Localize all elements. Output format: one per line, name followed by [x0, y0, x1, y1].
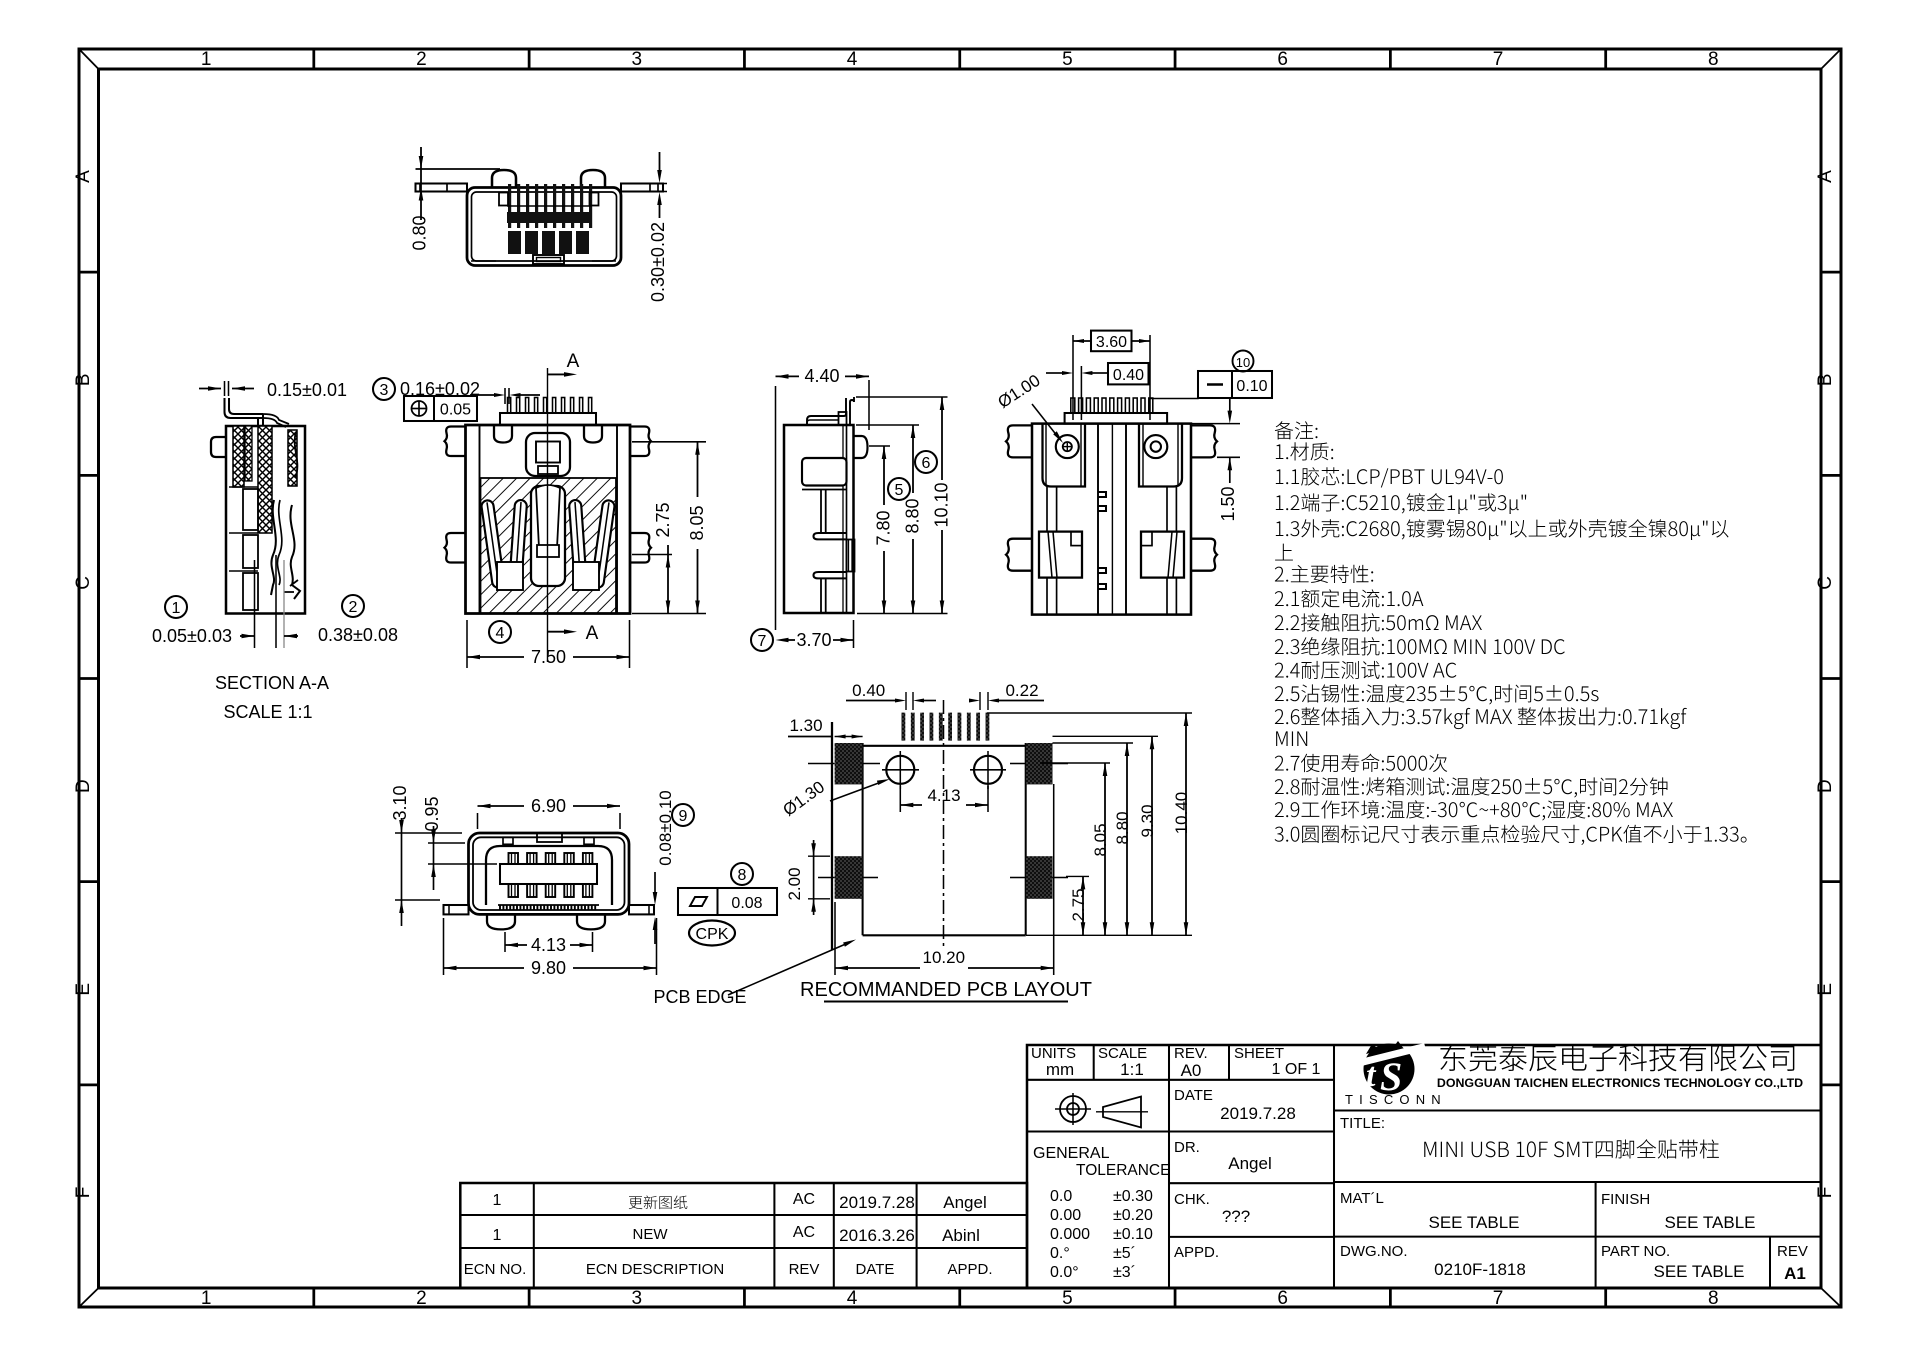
- svg-text:0.30±0.02: 0.30±0.02: [648, 222, 668, 302]
- svg-text:DWG.NO.: DWG.NO.: [1340, 1243, 1408, 1260]
- svg-text:F: F: [1815, 1187, 1836, 1199]
- svg-text:6.90: 6.90: [531, 796, 566, 816]
- svg-text:FINISH: FINISH: [1601, 1191, 1650, 1208]
- svg-text:8: 8: [1708, 49, 1719, 70]
- svg-text:8: 8: [738, 867, 747, 884]
- svg-text:A: A: [567, 351, 580, 372]
- svg-text:2.75: 2.75: [653, 502, 673, 537]
- svg-text:1: 1: [493, 1192, 502, 1209]
- svg-text:0.0: 0.0: [1050, 1188, 1072, 1205]
- svg-text:7.50: 7.50: [531, 647, 566, 667]
- svg-text:MAT´L: MAT´L: [1340, 1190, 1384, 1207]
- svg-text:REV.: REV.: [1174, 1045, 1208, 1062]
- svg-text:0.40: 0.40: [1113, 367, 1144, 384]
- svg-text:ECN DESCRIPTION: ECN DESCRIPTION: [586, 1261, 724, 1278]
- svg-text:DATE: DATE: [856, 1261, 895, 1278]
- svg-text:0.08±0.10: 0.08±0.10: [656, 790, 675, 866]
- svg-text:A: A: [73, 170, 94, 183]
- svg-text:TISCONN: TISCONN: [1345, 1092, 1447, 1107]
- svg-text:1 OF 1: 1 OF 1: [1272, 1061, 1321, 1078]
- svg-text:10.10: 10.10: [932, 482, 952, 527]
- svg-text:SEE TABLE: SEE TABLE: [1653, 1262, 1744, 1281]
- svg-text:3.60: 3.60: [1096, 334, 1127, 351]
- svg-text:0.°: 0.°: [1050, 1245, 1070, 1262]
- svg-text:1: 1: [201, 1288, 212, 1309]
- svg-text:AC: AC: [793, 1191, 815, 1208]
- svg-text:F: F: [73, 1187, 94, 1199]
- svg-text:4: 4: [847, 49, 858, 70]
- svg-text:3.70: 3.70: [796, 630, 831, 650]
- svg-text:REV: REV: [789, 1261, 820, 1278]
- svg-text:D: D: [73, 779, 94, 793]
- svg-text:3: 3: [631, 1288, 642, 1309]
- svg-text:7: 7: [758, 633, 767, 650]
- svg-text:SEE TABLE: SEE TABLE: [1428, 1213, 1519, 1232]
- svg-text:A1: A1: [1784, 1264, 1806, 1283]
- svg-text:2.75: 2.75: [1069, 888, 1088, 921]
- svg-text:RECOMMANDED PCB LAYOUT: RECOMMANDED PCB LAYOUT: [800, 979, 1092, 1001]
- svg-text:CHK.: CHK.: [1174, 1191, 1210, 1208]
- svg-text:0.80: 0.80: [410, 215, 430, 250]
- svg-text:8.05: 8.05: [1091, 823, 1110, 856]
- svg-text:Angel: Angel: [943, 1193, 986, 1212]
- svg-text:0.05: 0.05: [440, 402, 471, 419]
- svg-text:7.80: 7.80: [874, 510, 894, 545]
- svg-text:0.22: 0.22: [1005, 681, 1038, 700]
- svg-text:0.40: 0.40: [852, 681, 885, 700]
- svg-text:TITLE:: TITLE:: [1340, 1115, 1385, 1132]
- svg-text:8: 8: [1708, 1288, 1719, 1309]
- svg-text:6: 6: [1277, 1288, 1288, 1309]
- svg-text:10.40: 10.40: [1172, 792, 1191, 835]
- svg-text:Angel: Angel: [1228, 1154, 1271, 1173]
- svg-text:0.000: 0.000: [1050, 1226, 1090, 1243]
- svg-text:5: 5: [1062, 49, 1073, 70]
- svg-text:Abinl: Abinl: [942, 1226, 980, 1245]
- svg-text:8.80: 8.80: [1113, 811, 1132, 844]
- svg-text:±3´: ±3´: [1113, 1264, 1136, 1281]
- svg-text:7: 7: [1493, 49, 1504, 70]
- svg-text:0.08: 0.08: [731, 895, 762, 912]
- svg-text:6: 6: [1277, 49, 1288, 70]
- svg-text:SEE TABLE: SEE TABLE: [1664, 1213, 1755, 1232]
- svg-text:E: E: [1815, 983, 1836, 996]
- svg-text:4.13: 4.13: [531, 935, 566, 955]
- svg-text:A: A: [1815, 170, 1836, 183]
- svg-text:2: 2: [416, 1288, 427, 1309]
- svg-text:AC: AC: [793, 1224, 815, 1241]
- svg-text:1.50: 1.50: [1218, 486, 1238, 521]
- svg-text:A0: A0: [1181, 1061, 1202, 1080]
- svg-text:4: 4: [496, 625, 505, 642]
- svg-text:A: A: [586, 623, 599, 644]
- svg-text:C: C: [1815, 576, 1836, 590]
- svg-text:10: 10: [1236, 355, 1250, 370]
- svg-text:SCALE 1:1: SCALE 1:1: [223, 702, 312, 722]
- svg-text:±0.10: ±0.10: [1113, 1226, 1153, 1243]
- svg-text:9.80: 9.80: [531, 958, 566, 978]
- svg-text:10.20: 10.20: [923, 948, 966, 967]
- svg-text:2016.3.26: 2016.3.26: [839, 1226, 915, 1245]
- svg-text:TOLERANCE: TOLERANCE: [1076, 1162, 1170, 1179]
- svg-text:PART NO.: PART NO.: [1601, 1243, 1670, 1260]
- svg-text:9.30: 9.30: [1138, 804, 1157, 837]
- svg-text:0.15±0.01: 0.15±0.01: [267, 380, 347, 400]
- svg-text:PCB EDGE: PCB EDGE: [653, 987, 746, 1007]
- svg-text:D: D: [1815, 779, 1836, 793]
- svg-text:0.00: 0.00: [1050, 1207, 1081, 1224]
- svg-text:5: 5: [895, 482, 904, 499]
- svg-text:5: 5: [1062, 1288, 1073, 1309]
- svg-text:6: 6: [922, 455, 931, 472]
- svg-text:0.38±0.08: 0.38±0.08: [318, 625, 398, 645]
- svg-text:DR.: DR.: [1174, 1139, 1200, 1156]
- svg-text:9: 9: [679, 808, 688, 825]
- svg-text:APPD.: APPD.: [947, 1261, 992, 1278]
- svg-text:±0.30: ±0.30: [1113, 1188, 1153, 1205]
- svg-text:7: 7: [1493, 1288, 1504, 1309]
- svg-text:3.10: 3.10: [390, 785, 410, 820]
- svg-text:???: ???: [1222, 1207, 1250, 1226]
- svg-text:0.10: 0.10: [1236, 378, 1267, 395]
- svg-text:mm: mm: [1046, 1060, 1074, 1079]
- svg-text:0.95: 0.95: [422, 796, 442, 831]
- svg-text:CPK: CPK: [696, 926, 729, 943]
- svg-text:1: 1: [201, 49, 212, 70]
- svg-text:APPD.: APPD.: [1174, 1244, 1219, 1261]
- svg-text:DATE: DATE: [1174, 1087, 1213, 1104]
- svg-text:DONGGUAN TAICHEN ELECTRONICS T: DONGGUAN TAICHEN ELECTRONICS TECHNOLOGY …: [1437, 1076, 1803, 1090]
- svg-text:E: E: [73, 983, 94, 996]
- svg-text:3: 3: [380, 382, 389, 399]
- svg-text:SECTION A-A: SECTION A-A: [215, 673, 329, 693]
- svg-text:8.80: 8.80: [903, 498, 923, 533]
- svg-text:B: B: [73, 373, 94, 386]
- svg-text:3: 3: [631, 49, 642, 70]
- svg-text:1:1: 1:1: [1120, 1060, 1144, 1079]
- svg-text:0210F-1818: 0210F-1818: [1434, 1260, 1526, 1279]
- svg-text:±0.20: ±0.20: [1113, 1207, 1153, 1224]
- svg-text:1: 1: [493, 1227, 502, 1244]
- svg-text:SHEET: SHEET: [1234, 1045, 1284, 1062]
- svg-text:1: 1: [172, 600, 181, 617]
- svg-text:2: 2: [416, 49, 427, 70]
- svg-text:±5´: ±5´: [1113, 1245, 1136, 1262]
- svg-text:2019.7.28: 2019.7.28: [1220, 1104, 1296, 1123]
- svg-text:1.30: 1.30: [789, 716, 822, 735]
- svg-text:GENERAL: GENERAL: [1033, 1145, 1110, 1162]
- svg-text:REV: REV: [1777, 1243, 1808, 1260]
- svg-text:NEW: NEW: [633, 1226, 669, 1243]
- svg-text:2019.7.28: 2019.7.28: [839, 1193, 915, 1212]
- svg-text:t: t: [1366, 1057, 1377, 1094]
- svg-text:4: 4: [847, 1288, 858, 1309]
- svg-text:ECN NO.: ECN NO.: [464, 1261, 527, 1278]
- svg-text:8.05: 8.05: [687, 505, 707, 540]
- svg-text:2.00: 2.00: [785, 867, 804, 900]
- svg-text:4.40: 4.40: [804, 366, 839, 386]
- svg-text:0.0°: 0.0°: [1050, 1264, 1079, 1281]
- svg-text:B: B: [1815, 373, 1836, 386]
- svg-text:4.13: 4.13: [927, 786, 960, 805]
- svg-text:0.05±0.03: 0.05±0.03: [152, 626, 232, 646]
- svg-text:C: C: [73, 576, 94, 590]
- svg-text:2: 2: [349, 599, 358, 616]
